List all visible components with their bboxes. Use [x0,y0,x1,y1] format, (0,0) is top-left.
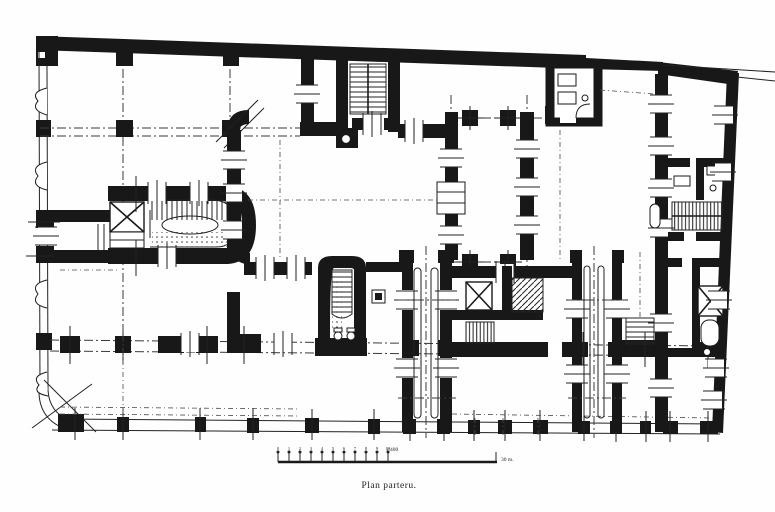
center-right-block [443,259,575,343]
svg-text:7: 7 [354,446,357,451]
floor-plan-drawing: 0 1 2 3 4 5 6 7 8 9 10 1:400 30 m. Plan … [0,0,775,512]
gateway-passage-central [394,246,459,438]
light-well-piers [437,95,540,274]
svg-text:9: 9 [376,446,379,451]
bay-window-moulding [35,162,47,190]
svg-text:8: 8 [365,446,368,451]
secondary-staircase [336,56,400,148]
scanned-plan-page: 0 1 2 3 4 5 6 7 8 9 10 1:400 30 m. Plan … [0,0,775,512]
stair-diagonal [512,278,543,312]
svg-text:5: 5 [332,446,335,451]
svg-text:2: 2 [299,446,301,451]
elevator-shaft [110,202,144,248]
stair-small [466,322,494,343]
svg-text:3: 3 [310,446,313,451]
svg-text:4: 4 [321,446,324,451]
main-staircase [33,176,256,276]
caption-title: Plan parteru. [361,481,416,491]
svg-text:6: 6 [343,446,346,451]
scale-ratio-label: 1:400 [386,447,399,453]
bay-window-moulding [35,280,47,308]
elevator-shaft [466,282,492,310]
scale-end-label: 30 m. [501,457,514,463]
scale-bar: 0 1 2 3 4 5 6 7 8 9 10 1:400 30 m. [277,446,514,463]
bay-window-moulding [35,88,47,115]
scale-tick-labels: 0 1 2 3 4 5 6 7 8 9 10 [277,446,391,451]
stair-small [626,318,654,344]
gateway-passage-right [564,246,630,438]
wc-room-top [550,64,655,260]
column [342,135,351,144]
svg-text:1: 1 [288,446,290,451]
winder-staircase [318,256,402,350]
svg-text:0: 0 [277,446,280,451]
bay-window-moulding [36,372,48,396]
